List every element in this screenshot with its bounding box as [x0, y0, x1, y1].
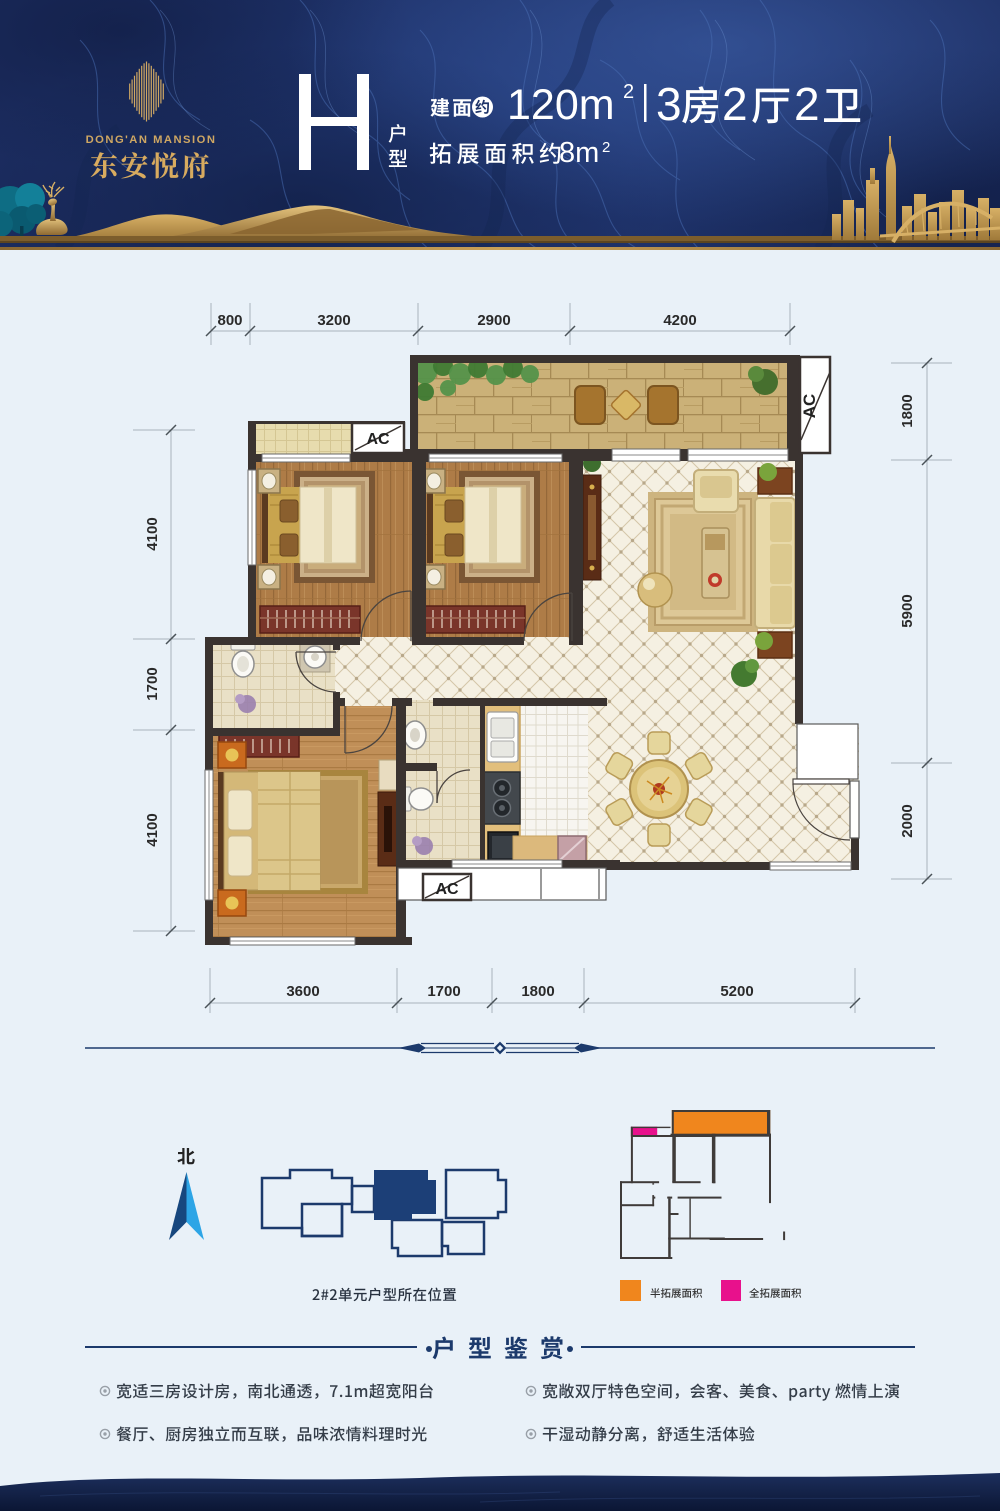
svg-text:1800: 1800: [899, 394, 916, 427]
svg-text:2: 2: [794, 78, 820, 130]
svg-text:4100: 4100: [144, 813, 161, 846]
svg-text:4100: 4100: [144, 517, 161, 550]
svg-text:1800: 1800: [521, 983, 554, 1000]
svg-text:2000: 2000: [899, 804, 916, 837]
svg-text:5200: 5200: [720, 983, 753, 1000]
svg-text:2: 2: [602, 139, 610, 156]
svg-text:3600: 3600: [286, 983, 319, 1000]
svg-text:AC: AC: [435, 881, 459, 898]
svg-text:4200: 4200: [663, 312, 696, 329]
svg-text:800: 800: [217, 312, 242, 329]
svg-text:2900: 2900: [477, 312, 510, 329]
svg-text:8m: 8m: [559, 137, 599, 169]
svg-text:2: 2: [722, 78, 748, 130]
svg-text:120m: 120m: [507, 81, 615, 129]
svg-text:3: 3: [656, 78, 682, 130]
svg-text:2: 2: [623, 81, 634, 103]
svg-text:1700: 1700: [144, 667, 161, 700]
svg-text:5900: 5900: [899, 594, 916, 627]
svg-text:AC: AC: [800, 394, 819, 419]
svg-text:3200: 3200: [317, 312, 350, 329]
svg-text:DONG'AN MANSION: DONG'AN MANSION: [86, 134, 217, 146]
svg-text:AC: AC: [366, 431, 390, 448]
svg-text:1700: 1700: [427, 983, 460, 1000]
